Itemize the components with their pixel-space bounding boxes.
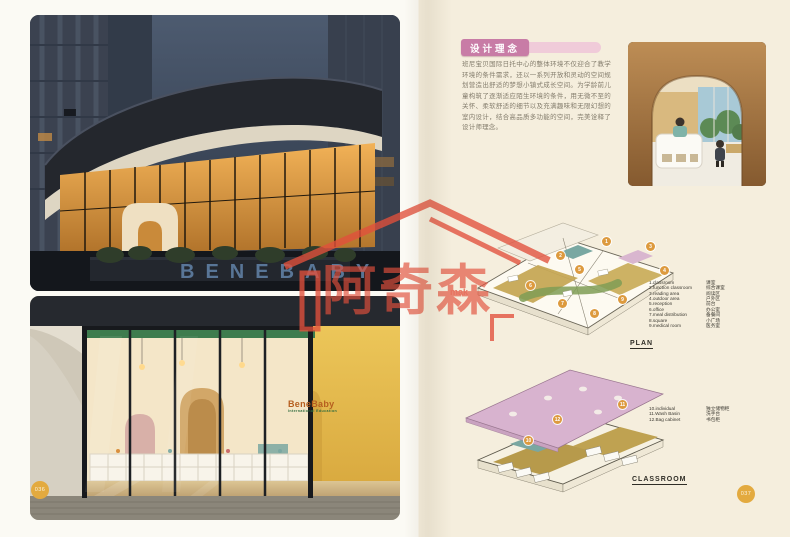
plan-marker: 7	[558, 299, 567, 308]
legend-item: 9.medical room医务室	[649, 323, 745, 328]
section-title-badge: 设计理念	[461, 39, 529, 56]
section-title: 设计理念	[470, 41, 520, 55]
plan-label: PLAN	[630, 340, 653, 349]
plan-marker: 9	[618, 295, 627, 304]
plan-marker: 6	[526, 281, 535, 290]
storefront-interior-photo: BeneBaby International Education	[30, 296, 400, 520]
exterior-night-illustration: BENEBABY	[30, 15, 400, 291]
exterior-night-photo: BENEBABY	[30, 15, 400, 291]
classroom-marker: 11	[618, 400, 627, 409]
plan-marker: 1	[602, 237, 611, 246]
planter-letters: BENEBABY	[180, 261, 380, 283]
reception-photo	[628, 42, 766, 186]
magazine-spread: BENEBABY	[0, 0, 790, 537]
page-gutter-shadow	[404, 0, 452, 537]
plan-marker: 8	[590, 309, 599, 318]
classroom-marker: 10	[524, 436, 533, 445]
plan-marker: 5	[575, 265, 584, 274]
reception-illustration	[628, 42, 766, 186]
page-number-left: 036	[31, 481, 49, 499]
watermark-subtext: mak	[450, 287, 469, 297]
classroom-legend: 10.individual独立储物柜 11.Wash Basin洗手台 12.B…	[649, 406, 749, 422]
plan-marker: 3	[646, 242, 655, 251]
sign-subtitle: International Education	[288, 410, 337, 414]
page-number-right: 037	[737, 485, 755, 503]
plan-marker: 4	[660, 266, 669, 275]
plan-legend: 1.classroom课室 2.function classroom综合课室 3…	[649, 280, 745, 328]
benebaby-signage: BeneBaby International Education	[288, 400, 337, 414]
classroom-marker: 12	[553, 415, 562, 424]
legend-item: 12.Bag cabinet书包柜	[649, 417, 749, 422]
storefront-illustration	[30, 296, 400, 520]
classroom-label: CLASSROOM	[632, 476, 687, 485]
plan-marker: 2	[556, 251, 565, 260]
intro-paragraph: 班尼宝贝国际日托中心的整体环境不仅迎合了教学环境的条件需求，还以一系列开放和灵动…	[462, 60, 611, 134]
